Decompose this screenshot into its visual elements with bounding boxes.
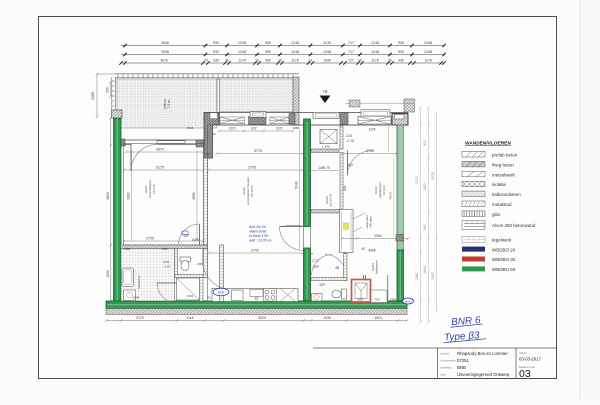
svg-text:30P: 30P: [319, 283, 326, 287]
svg-text:tegelwerk: tegelwerk: [492, 237, 512, 242]
svg-text:4.85: 4.85: [163, 260, 169, 264]
svg-text:216: 216: [345, 134, 352, 138]
svg-text:2170: 2170: [136, 316, 144, 320]
svg-text:4455: 4455: [368, 249, 375, 253]
svg-text:2705: 2705: [248, 166, 256, 170]
svg-text:1178: 1178: [424, 59, 431, 63]
svg-text:fase: fase: [441, 373, 447, 377]
svg-text:622: 622: [251, 127, 257, 131]
svg-text:930: 930: [213, 41, 219, 45]
svg-text:885: 885: [162, 247, 167, 251]
svg-text:kalkzandsteen: kalkzandsteen: [492, 192, 521, 197]
svg-text:vlaknr.émél.: vlaknr.émél.: [249, 230, 267, 234]
svg-text:hal 3.9 m²: hal 3.9 m²: [329, 194, 333, 207]
svg-text:1248: 1248: [238, 41, 246, 45]
svg-text:1248: 1248: [424, 41, 432, 45]
svg-text:1510: 1510: [374, 316, 382, 320]
svg-text:BNR 6: BNR 6: [451, 315, 482, 328]
svg-text:documentnr.: documentnr.: [441, 359, 457, 363]
svg-text:2705: 2705: [251, 249, 259, 253]
svg-text:717: 717: [348, 41, 354, 45]
svg-text:910: 910: [423, 140, 427, 146]
svg-text:660: 660: [423, 224, 427, 230]
svg-text:500: 500: [106, 87, 110, 93]
svg-text:950: 950: [265, 41, 271, 45]
svg-text:3946: 3946: [161, 41, 169, 45]
svg-text:3946: 3946: [161, 50, 169, 54]
svg-text:architect: architect: [441, 366, 452, 370]
svg-text:badkamer: badkamer: [375, 260, 379, 273]
svg-text:1248: 1248: [291, 50, 299, 54]
svg-text:watt : 23.05 ²m.: watt : 23.05 ²m.: [249, 239, 272, 243]
svg-text:717: 717: [348, 59, 354, 63]
svg-text:BNB: BNB: [457, 365, 466, 370]
svg-text:1000: 1000: [357, 298, 364, 302]
svg-text:5175: 5175: [156, 166, 164, 170]
svg-text:3775: 3775: [254, 149, 262, 153]
svg-text:60: 60: [207, 296, 211, 300]
svg-text:2050: 2050: [374, 234, 382, 238]
svg-text:1178: 1178: [238, 59, 245, 63]
svg-text:930: 930: [398, 50, 404, 54]
svg-text:1060: 1060: [293, 126, 300, 130]
svg-text:30P: 30P: [313, 265, 320, 269]
svg-text:1393: 1393: [187, 294, 194, 298]
svg-text:24: 24: [204, 59, 208, 63]
svg-text:1248: 1248: [291, 41, 299, 45]
svg-text:1530: 1530: [106, 270, 110, 278]
svg-text:950: 950: [265, 50, 271, 54]
svg-text:930: 930: [398, 41, 404, 45]
svg-text:21.2 m²: 21.2 m²: [152, 184, 156, 194]
svg-text:3990: 3990: [127, 192, 131, 200]
svg-text:1248: 1248: [424, 50, 432, 54]
svg-text:3946: 3946: [187, 126, 194, 130]
svg-text:4210: 4210: [389, 192, 393, 200]
svg-text:930: 930: [213, 59, 219, 63]
svg-text:WBDBO 60: WBDBO 60: [492, 267, 516, 272]
svg-text:45: 45: [361, 247, 365, 251]
svg-text:Änd.2a/ VV: Änd.2a/ VV: [248, 225, 267, 229]
svg-text:765: 765: [204, 152, 209, 156]
svg-text:1178: 1178: [291, 59, 298, 63]
svg-text:1178: 1178: [371, 59, 378, 63]
svg-text:+0: +0: [323, 89, 328, 94]
svg-text:30: 30: [388, 59, 392, 63]
svg-text:36: 36: [225, 59, 229, 63]
svg-text:3976: 3976: [160, 59, 168, 63]
svg-text:30: 30: [255, 59, 259, 63]
svg-text:Alvon 250 betonwand: Alvon 250 betonwand: [492, 223, 536, 228]
svg-text:717: 717: [348, 50, 354, 54]
svg-text:1348: 1348: [415, 273, 419, 281]
svg-text:project: project: [441, 352, 450, 356]
svg-text:1248: 1248: [371, 50, 379, 54]
svg-text:9490: 9490: [192, 238, 200, 242]
svg-text:4070: 4070: [156, 148, 164, 152]
svg-text:36: 36: [358, 59, 362, 63]
svg-text:1348: 1348: [323, 59, 331, 63]
svg-text:700: 700: [375, 298, 380, 302]
svg-text:datum: datum: [519, 351, 528, 355]
svg-text:3010: 3010: [415, 176, 419, 184]
svg-text:5040: 5040: [295, 181, 299, 189]
svg-text:03-03-2017: 03-03-2017: [519, 357, 542, 362]
svg-text:1B8: 1B8: [197, 262, 203, 266]
svg-text:1135: 1135: [323, 41, 331, 45]
svg-text:1435: 1435: [323, 316, 331, 320]
svg-text:1348: 1348: [323, 50, 331, 54]
svg-text:in Ánne 17ël :: in Ánne 17ël :: [249, 234, 270, 238]
svg-text:1170: 1170: [276, 127, 283, 131]
svg-text:26.10 m²: 26.10 m²: [250, 185, 254, 197]
svg-text:17.2: 17.2: [312, 259, 319, 263]
svg-text:2705: 2705: [146, 237, 154, 241]
svg-text:prefab beton: prefab beton: [492, 153, 518, 158]
svg-text:600 diep: 600 diep: [369, 216, 373, 227]
svg-text:1115: 1115: [186, 316, 193, 320]
svg-text:1.83: 1.83: [164, 265, 170, 269]
svg-text:1400: 1400: [390, 298, 397, 302]
svg-text:11.9 m²: 11.9 m²: [382, 185, 386, 195]
svg-text:1248: 1248: [238, 50, 246, 54]
svg-text:40x: 40x: [343, 185, 347, 191]
svg-text:ihwg beton: ihwg beton: [492, 162, 514, 167]
svg-text:36: 36: [278, 59, 282, 63]
svg-text:1170: 1170: [229, 127, 236, 131]
svg-text:WBDBO 20: WBDBO 20: [492, 247, 516, 252]
svg-text:metalstud: metalstud: [492, 202, 512, 207]
svg-text:950: 950: [265, 59, 271, 63]
svg-text:2705: 2705: [366, 149, 374, 153]
svg-text:1985: 1985: [124, 247, 131, 251]
svg-text:WANDEN/VLOEREN: WANDEN/VLOEREN: [465, 141, 511, 147]
svg-text:k+b: k+b: [218, 291, 224, 295]
svg-text:3376: 3376: [431, 172, 435, 180]
svg-text:930: 930: [213, 50, 219, 54]
svg-text:Uitvoeringsgereed Ontwerp: Uitvoeringsgereed Ontwerp: [457, 372, 510, 377]
svg-text:WBDBO 30: WBDBO 30: [492, 257, 516, 262]
svg-text:2504: 2504: [133, 296, 140, 300]
svg-text:1380: 1380: [91, 92, 95, 100]
svg-text:1490 79: 1490 79: [318, 166, 330, 170]
svg-text:3220: 3220: [258, 316, 266, 320]
svg-text:24: 24: [308, 59, 312, 63]
svg-text:1.190: 1.190: [322, 145, 330, 149]
svg-text:1664: 1664: [423, 266, 427, 274]
svg-text:1957: 1957: [431, 272, 435, 280]
svg-text:2690: 2690: [106, 192, 110, 200]
svg-text:Rhapsody Bos en Lommer: Rhapsody Bos en Lommer: [457, 351, 508, 356]
svg-text:gibo: gibo: [492, 212, 501, 217]
svg-text:03: 03: [519, 368, 531, 380]
svg-text:1430: 1430: [423, 183, 427, 191]
svg-text:7.3 m²: 7.3 m²: [167, 99, 171, 108]
svg-text:metselwerk: metselwerk: [492, 172, 516, 177]
svg-text:07251: 07251: [457, 358, 470, 363]
svg-text:3990: 3990: [192, 192, 196, 200]
svg-text:1178: 1178: [369, 128, 376, 132]
svg-text:Stβ: Stβ: [347, 163, 354, 167]
svg-text:badkamer: badkamer: [137, 275, 141, 288]
svg-text:2.15: 2.15: [346, 139, 354, 143]
svg-text:930: 930: [398, 59, 404, 63]
svg-text:k+b: k+b: [406, 300, 411, 304]
svg-text:isolatie: isolatie: [492, 182, 507, 187]
svg-text:1248: 1248: [371, 41, 379, 45]
